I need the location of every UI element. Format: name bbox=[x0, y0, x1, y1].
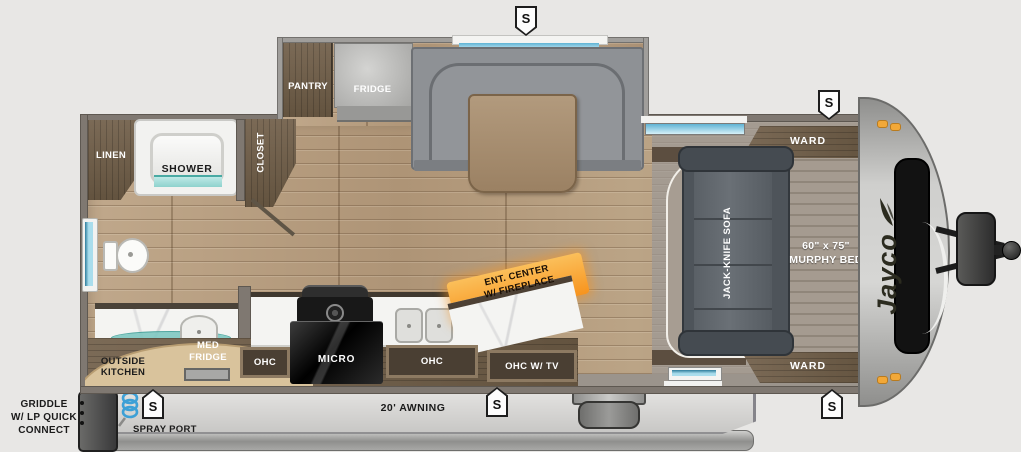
speaker-marker-top-right: S bbox=[818, 90, 840, 120]
wall-bottom bbox=[80, 386, 878, 394]
vanity-faucet-dot bbox=[197, 330, 201, 334]
ohc-cabinet-center: OHC bbox=[386, 345, 478, 378]
ohc-cabinet-left: OHC bbox=[240, 347, 290, 378]
speaker-marker-bottom-left: S bbox=[142, 389, 164, 419]
hitch-ball bbox=[1002, 241, 1021, 260]
floorplan-canvas: 20' AWNING GRIDDLE W/ LP QUICK CONNECT S… bbox=[0, 0, 1021, 452]
microwave bbox=[290, 321, 383, 384]
speaker-marker-top-center: S bbox=[515, 6, 537, 36]
linen-label: LINEN bbox=[86, 150, 136, 161]
med-fridge-label: MED FRIDGE bbox=[178, 340, 238, 364]
awning-label: 20' AWNING bbox=[348, 403, 478, 414]
jayco-bird-icon bbox=[879, 197, 895, 227]
marker-light-top-1 bbox=[877, 120, 888, 128]
fridge-label: FRIDGE bbox=[334, 84, 411, 95]
shower-label: SHOWER bbox=[139, 164, 235, 175]
cooktop-burner-icon bbox=[326, 304, 344, 322]
marker-light-bottom-2 bbox=[890, 373, 901, 381]
sink-drain-dot-left bbox=[407, 324, 411, 328]
marker-light-top-2 bbox=[890, 123, 901, 131]
bath-closet-wall bbox=[236, 119, 245, 201]
top-right-window-sill bbox=[641, 116, 747, 123]
speaker-marker-bottom-center: S bbox=[486, 387, 508, 417]
med-fridge-step bbox=[184, 368, 230, 381]
sofa-arm-top bbox=[678, 146, 794, 172]
outside-kitchen-label: OUTSIDE KITCHEN bbox=[78, 356, 168, 378]
closet-label: CLOSET bbox=[256, 124, 269, 182]
speaker-marker-bottom-right: S bbox=[821, 389, 843, 419]
griddle-knob-dots bbox=[80, 401, 86, 431]
griddle-label: GRIDDLE W/ LP QUICK CONNECT bbox=[0, 398, 88, 437]
vanity-sink bbox=[180, 315, 218, 340]
pantry-cabinet bbox=[283, 43, 333, 117]
entry-step-3 bbox=[578, 401, 640, 429]
dinette-table bbox=[468, 94, 577, 193]
propane-tank-cover bbox=[956, 212, 996, 286]
brand-logo: Jayco bbox=[870, 186, 904, 326]
shower-glass-edge bbox=[154, 175, 222, 187]
wardrobe-bottom-label: WARD bbox=[756, 361, 860, 372]
sink-drain-dot-right bbox=[437, 324, 441, 328]
marker-light-bottom-1 bbox=[877, 376, 888, 384]
ohc-cabinet-tv: OHC W/ TV bbox=[487, 350, 577, 382]
sofa-label: JACK-KNIFE SOFA bbox=[722, 191, 736, 315]
brand-logo-text: Jayco bbox=[872, 233, 903, 315]
spray-port-label: SPRAY PORT bbox=[133, 424, 205, 435]
pantry-label: PANTRY bbox=[281, 81, 335, 92]
fridge bbox=[334, 43, 413, 108]
sofa-arm-bottom bbox=[678, 330, 794, 356]
bottom-right-window-sill bbox=[664, 381, 722, 386]
fridge-base-shadow bbox=[337, 106, 411, 122]
top-right-window-glass bbox=[645, 123, 745, 135]
microwave-label: MICRO bbox=[290, 354, 383, 365]
left-window-glass bbox=[85, 222, 93, 286]
bottom-right-window-frame bbox=[668, 367, 722, 381]
toilet-flush-dot bbox=[128, 252, 133, 257]
